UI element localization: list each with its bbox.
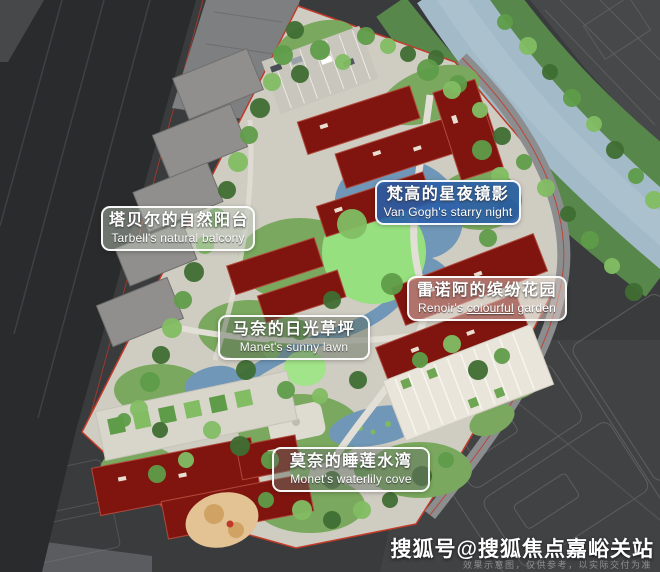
label-manet-sunny-lawn: 马奈的日光草坪 Manet's sunny lawn [218, 315, 370, 360]
label-monet-waterlily-cove: 莫奈的睡莲水湾 Monet's waterlily cove [272, 447, 430, 492]
label-van-gogh-starry-night: 梵高的星夜镜影 Van Gogh's starry night [375, 180, 521, 225]
label-zh-text: 马奈的日光草坪 [226, 320, 362, 340]
label-en-text: Tarbell's natural balcony [109, 231, 247, 246]
label-zh-text: 梵高的星夜镜影 [383, 185, 513, 205]
label-zh-text: 莫奈的睡莲水湾 [280, 452, 422, 472]
label-en-text: Renoir's colourful garden [415, 301, 559, 316]
label-en-text: Monet's waterlily cove [280, 472, 422, 487]
label-renoir-colourful-garden: 雷诺阿的缤纷花园 Renoir's colourful garden [407, 276, 567, 321]
masterplan-image: 塔贝尔的自然阳台 Tarbell's natural balcony 梵高的星夜… [0, 0, 660, 572]
disclaimer-text: 效果示意图，仅供参考，以实际交付为准 [463, 558, 652, 571]
label-zh-text: 雷诺阿的缤纷花园 [415, 281, 559, 301]
label-en-text: Manet's sunny lawn [226, 340, 362, 355]
label-en-text: Van Gogh's starry night [383, 205, 513, 220]
label-tarbell-natural-balcony: 塔贝尔的自然阳台 Tarbell's natural balcony [101, 206, 255, 251]
label-zh-text: 塔贝尔的自然阳台 [109, 211, 247, 231]
